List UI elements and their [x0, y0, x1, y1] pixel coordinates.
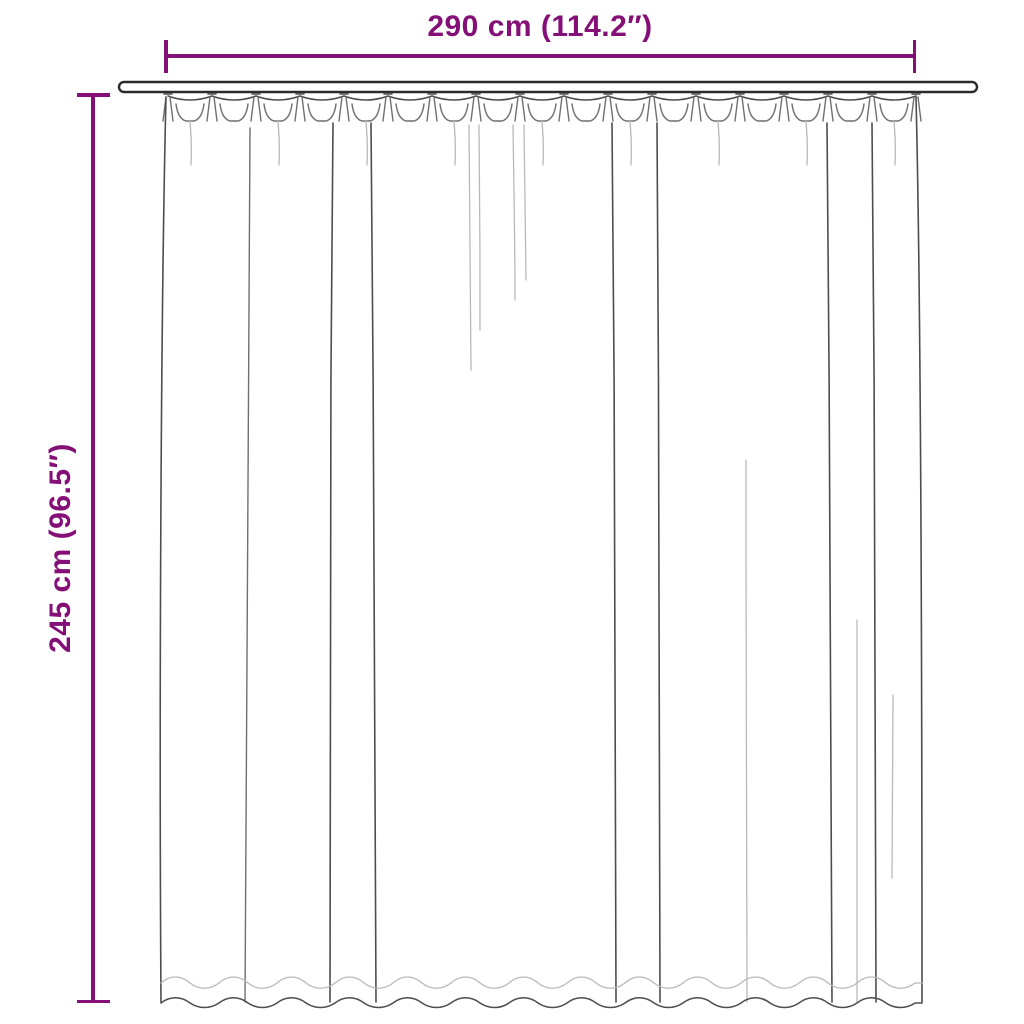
- width-dimension-left-tick: [164, 40, 168, 73]
- fold-line: [612, 123, 616, 1002]
- height-dimension-top-tick: [77, 93, 110, 97]
- fold-line: [872, 123, 876, 1002]
- fold-shadow-line: [892, 695, 893, 878]
- fold-line: [245, 128, 250, 1002]
- fold-shadow-line: [469, 125, 471, 370]
- fold-shadow-line: [479, 125, 480, 330]
- curtain-hem: [161, 977, 922, 1008]
- curtain-rod: [119, 82, 977, 92]
- fold-shadow-line: [746, 460, 747, 1002]
- fold-line: [827, 123, 832, 1002]
- header-gather-strokes: [190, 121, 895, 165]
- curtain-header: [163, 94, 921, 165]
- rod-bar: [119, 82, 977, 92]
- width-dimension-line: [164, 54, 916, 58]
- hem-bottom-edge: [161, 998, 922, 1008]
- fold-line: [330, 123, 333, 1002]
- fold-line: [371, 123, 376, 1002]
- width-dimension-label: 290 cm (114.2″): [164, 12, 916, 42]
- height-dimension: 245 cm (96.5″): [77, 93, 110, 1003]
- curtain-right-edge: [916, 97, 922, 1002]
- height-dimension-label: 245 cm (96.5″): [46, 443, 76, 653]
- width-dimension: 290 cm (114.2″): [164, 40, 916, 73]
- header-top-edge: [168, 96, 916, 100]
- width-dimension-right-tick: [913, 40, 917, 73]
- height-dimension-bottom-tick: [77, 1000, 110, 1004]
- curtain-illustration: [0, 0, 1024, 1024]
- height-dimension-line: [91, 93, 95, 1003]
- hem-fold-line: [161, 977, 922, 988]
- curtain-folds: [160, 97, 922, 1002]
- fold-shadow-line: [524, 125, 526, 280]
- fold-line: [657, 123, 660, 1002]
- header-crease-line: [176, 104, 908, 121]
- fold-shadow-line: [513, 125, 515, 300]
- curtain-left-edge: [160, 97, 166, 1002]
- product-dimension-diagram: 290 cm (114.2″) 245 cm (96.5″): [0, 0, 1024, 1024]
